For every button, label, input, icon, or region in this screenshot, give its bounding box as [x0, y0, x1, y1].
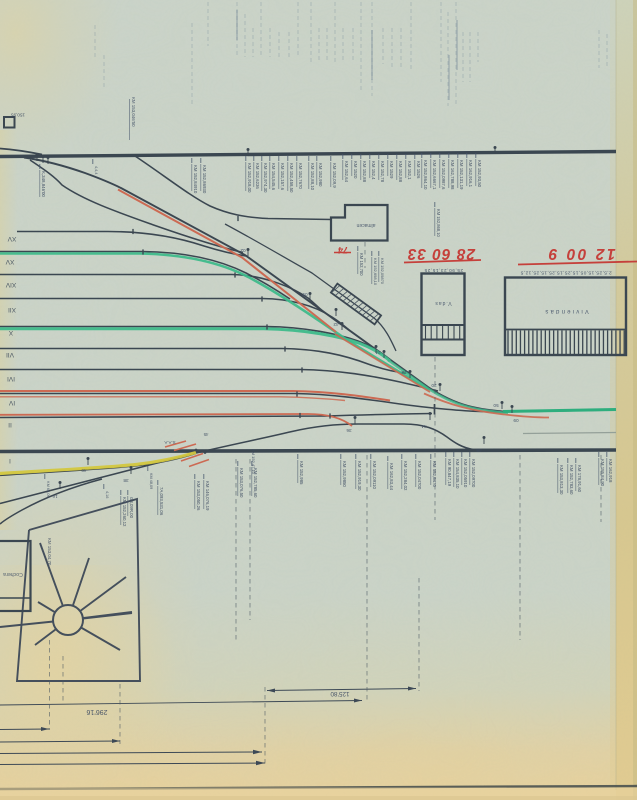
svg-text:KM 152,284,02: KM 152,284,02: [403, 461, 408, 491]
svg-text:KM 152,918,00: KM 152,918,00: [247, 163, 252, 193]
svg-text:KM 152,7670: KM 152,7670: [298, 163, 303, 189]
svg-text:KM 152,88,10: KM 152,88,10: [310, 163, 315, 191]
svg-text:36: 36: [346, 428, 352, 433]
svg-text:KM 48,09: KM 48,09: [149, 473, 153, 489]
svg-text:XIV: XIV: [5, 281, 16, 288]
svg-text:KM 152,6236: KM 152,6236: [255, 163, 260, 189]
svg-text:KM 152,458,50: KM 152,458,50: [289, 163, 294, 193]
svg-text:KM 152,260,12: KM 152,260,12: [122, 497, 127, 527]
svg-text:KM 153,076,50: KM 153,076,50: [239, 468, 244, 498]
svg-text:VII: VII: [6, 351, 14, 358]
svg-text:KM 152,9850: KM 152,9850: [342, 461, 347, 487]
svg-text:KM 152,09110: KM 152,09110: [372, 461, 377, 490]
svg-text:150,95: 150,95: [11, 113, 25, 118]
svg-text:25,90,23,15,25: 25,90,23,15,25: [424, 268, 463, 273]
svg-text:KM 146,076,19: KM 146,076,19: [205, 481, 210, 511]
svg-text:KM 152,09870: KM 152,09870: [380, 258, 385, 285]
svg-text:02: 02: [240, 248, 246, 253]
svg-text:KM 152,88: KM 152,88: [398, 161, 403, 183]
svg-text:22: 22: [401, 370, 407, 375]
svg-text:Cochera: Cochera: [3, 571, 23, 577]
svg-text:IV: IV: [8, 399, 15, 406]
svg-text:K,348,846’00: K,348,846’00: [41, 171, 46, 197]
svg-text:4,4,4: 4,4,4: [94, 166, 98, 174]
svg-text:KM 178,91,60: KM 178,91,60: [577, 465, 582, 493]
svg-text:38: 38: [123, 478, 129, 483]
svg-text:I: I: [9, 457, 11, 464]
svg-text:KM 152,0987,6: KM 152,0987,6: [441, 160, 446, 190]
svg-text:KM 152,698,10: KM 152,698,10: [373, 258, 378, 286]
svg-text:KM 162,788,98: KM 162,788,98: [450, 160, 455, 190]
svg-text:KM 152,131,19: KM 152,131,19: [459, 160, 464, 190]
svg-text:KM 152,47,10: KM 152,47,10: [251, 449, 256, 475]
svg-text:KM 153,04,70: KM 153,04,70: [47, 538, 52, 566]
svg-text:KM 152,88: KM 152,88: [362, 161, 367, 183]
svg-text:KM 152,4: KM 152,4: [371, 161, 376, 180]
svg-text:KM 152,783,60: KM 152,783,60: [569, 465, 574, 495]
svg-text:KM 155,84,90: KM 155,84,90: [600, 459, 605, 487]
svg-text:KM 152,8470: KM 152,8470: [432, 461, 437, 487]
svg-text:KM 152,09700: KM 152,09700: [471, 459, 476, 488]
svg-text:almacen: almacen: [356, 222, 375, 228]
svg-text:KM 152,157,6: KM 152,157,6: [280, 163, 285, 191]
svg-text:40: 40: [81, 468, 87, 473]
svg-text:KM 152,868,10: KM 152,868,10: [436, 209, 441, 237]
svg-text:KM 152,78: KM 152,78: [380, 161, 385, 183]
svg-text:II: II: [8, 421, 12, 428]
svg-text:4,16: 4,16: [105, 491, 109, 498]
svg-text:12 00 9: 12 00 9: [546, 245, 615, 262]
svg-text:7A,093,531,06: 7A,093,531,06: [159, 487, 164, 516]
svg-text:296’16: 296’16: [86, 708, 107, 715]
svg-text:KM 1526: KM 1526: [416, 161, 421, 179]
svg-text:125’80: 125’80: [330, 690, 350, 697]
svg-text:KM 152,64: KM 152,64: [344, 161, 349, 183]
svg-text:KM 152,864,10: KM 152,864,10: [423, 160, 428, 190]
svg-text:42: 42: [333, 322, 339, 327]
svg-text:V.das: V.das: [434, 300, 451, 306]
svg-text:XV: XV: [5, 258, 14, 265]
svg-text:KM 153,813,30: KM 153,813,30: [559, 465, 564, 495]
svg-text:KM 162,83,44: KM 162,83,44: [389, 463, 394, 491]
svg-text:KM 152,05910: KM 152,05910: [463, 459, 468, 488]
svg-text:KM 68,09: KM 68,09: [46, 481, 51, 498]
svg-text:20: 20: [431, 383, 437, 388]
svg-text:16: 16: [52, 494, 58, 499]
svg-text:KM 152,93,50: KM 152,93,50: [477, 160, 482, 188]
svg-text:KM 152,985: KM 152,985: [299, 461, 304, 485]
svg-text:G3,09R,00: G3,09R,00: [129, 497, 134, 519]
svg-text:50: 50: [493, 403, 499, 408]
svg-text:KM 152,6667,1: KM 152,6667,1: [432, 160, 437, 190]
svg-text:KM 152,04700: KM 152,04700: [417, 461, 422, 490]
svg-text:KM 152,919,30: KM 152,919,30: [357, 461, 362, 491]
svg-text:KM 162,918: KM 162,918: [608, 459, 613, 483]
svg-text:KM 152,700: KM 152,700: [359, 253, 364, 276]
svg-text:KM 90,847,19: KM 90,847,19: [447, 459, 452, 487]
svg-text:2,5,25,15,05,15,25,15,25,15,25: 2,5,25,15,05,15,25,15,25,15,25,12,5: [520, 270, 611, 276]
svg-text:KM 154,835,10: KM 154,835,10: [455, 459, 460, 489]
svg-text:KM 152,980: KM 152,980: [318, 163, 323, 187]
svg-text:KM 152,84910: KM 152,84910: [193, 165, 198, 194]
svg-text:KM 152,09,9: KM 152,09,9: [332, 163, 337, 188]
svg-text:KM 152,86930: KM 152,86930: [202, 165, 207, 194]
svg-text:74: 74: [338, 245, 348, 255]
svg-text:X: X: [8, 329, 13, 336]
svg-text:KM 1520: KM 1520: [353, 161, 358, 179]
svg-text:KM 1529: KM 1529: [389, 161, 394, 179]
svg-text:XII: XII: [8, 306, 16, 313]
svg-text:KM 162,916,1: KM 162,916,1: [468, 160, 473, 188]
svg-text:09: 09: [513, 418, 519, 423]
svg-text:XV: XV: [7, 235, 16, 242]
svg-text:04: 04: [302, 292, 308, 297]
svg-text:KM 154,545,6: KM 154,545,6: [271, 163, 276, 191]
svg-text:45: 45: [203, 432, 208, 437]
svg-text:IVI: IVI: [7, 375, 15, 382]
svg-text:S.A.A: S.A.A: [164, 440, 175, 445]
svg-text:KM 153,046’50: KM 153,046’50: [131, 97, 136, 127]
svg-text:KM 153,050,26: KM 153,050,26: [196, 481, 201, 511]
svg-text:44: 44: [421, 424, 427, 429]
svg-text:28 60 33: 28 60 33: [407, 245, 476, 262]
svg-text:48: 48: [476, 448, 482, 453]
svg-text:Viviendas: Viviendas: [543, 308, 589, 314]
svg-text:KM 152,1: KM 152,1: [407, 161, 412, 180]
svg-text:KM 152,974,30: KM 152,974,30: [263, 163, 268, 193]
